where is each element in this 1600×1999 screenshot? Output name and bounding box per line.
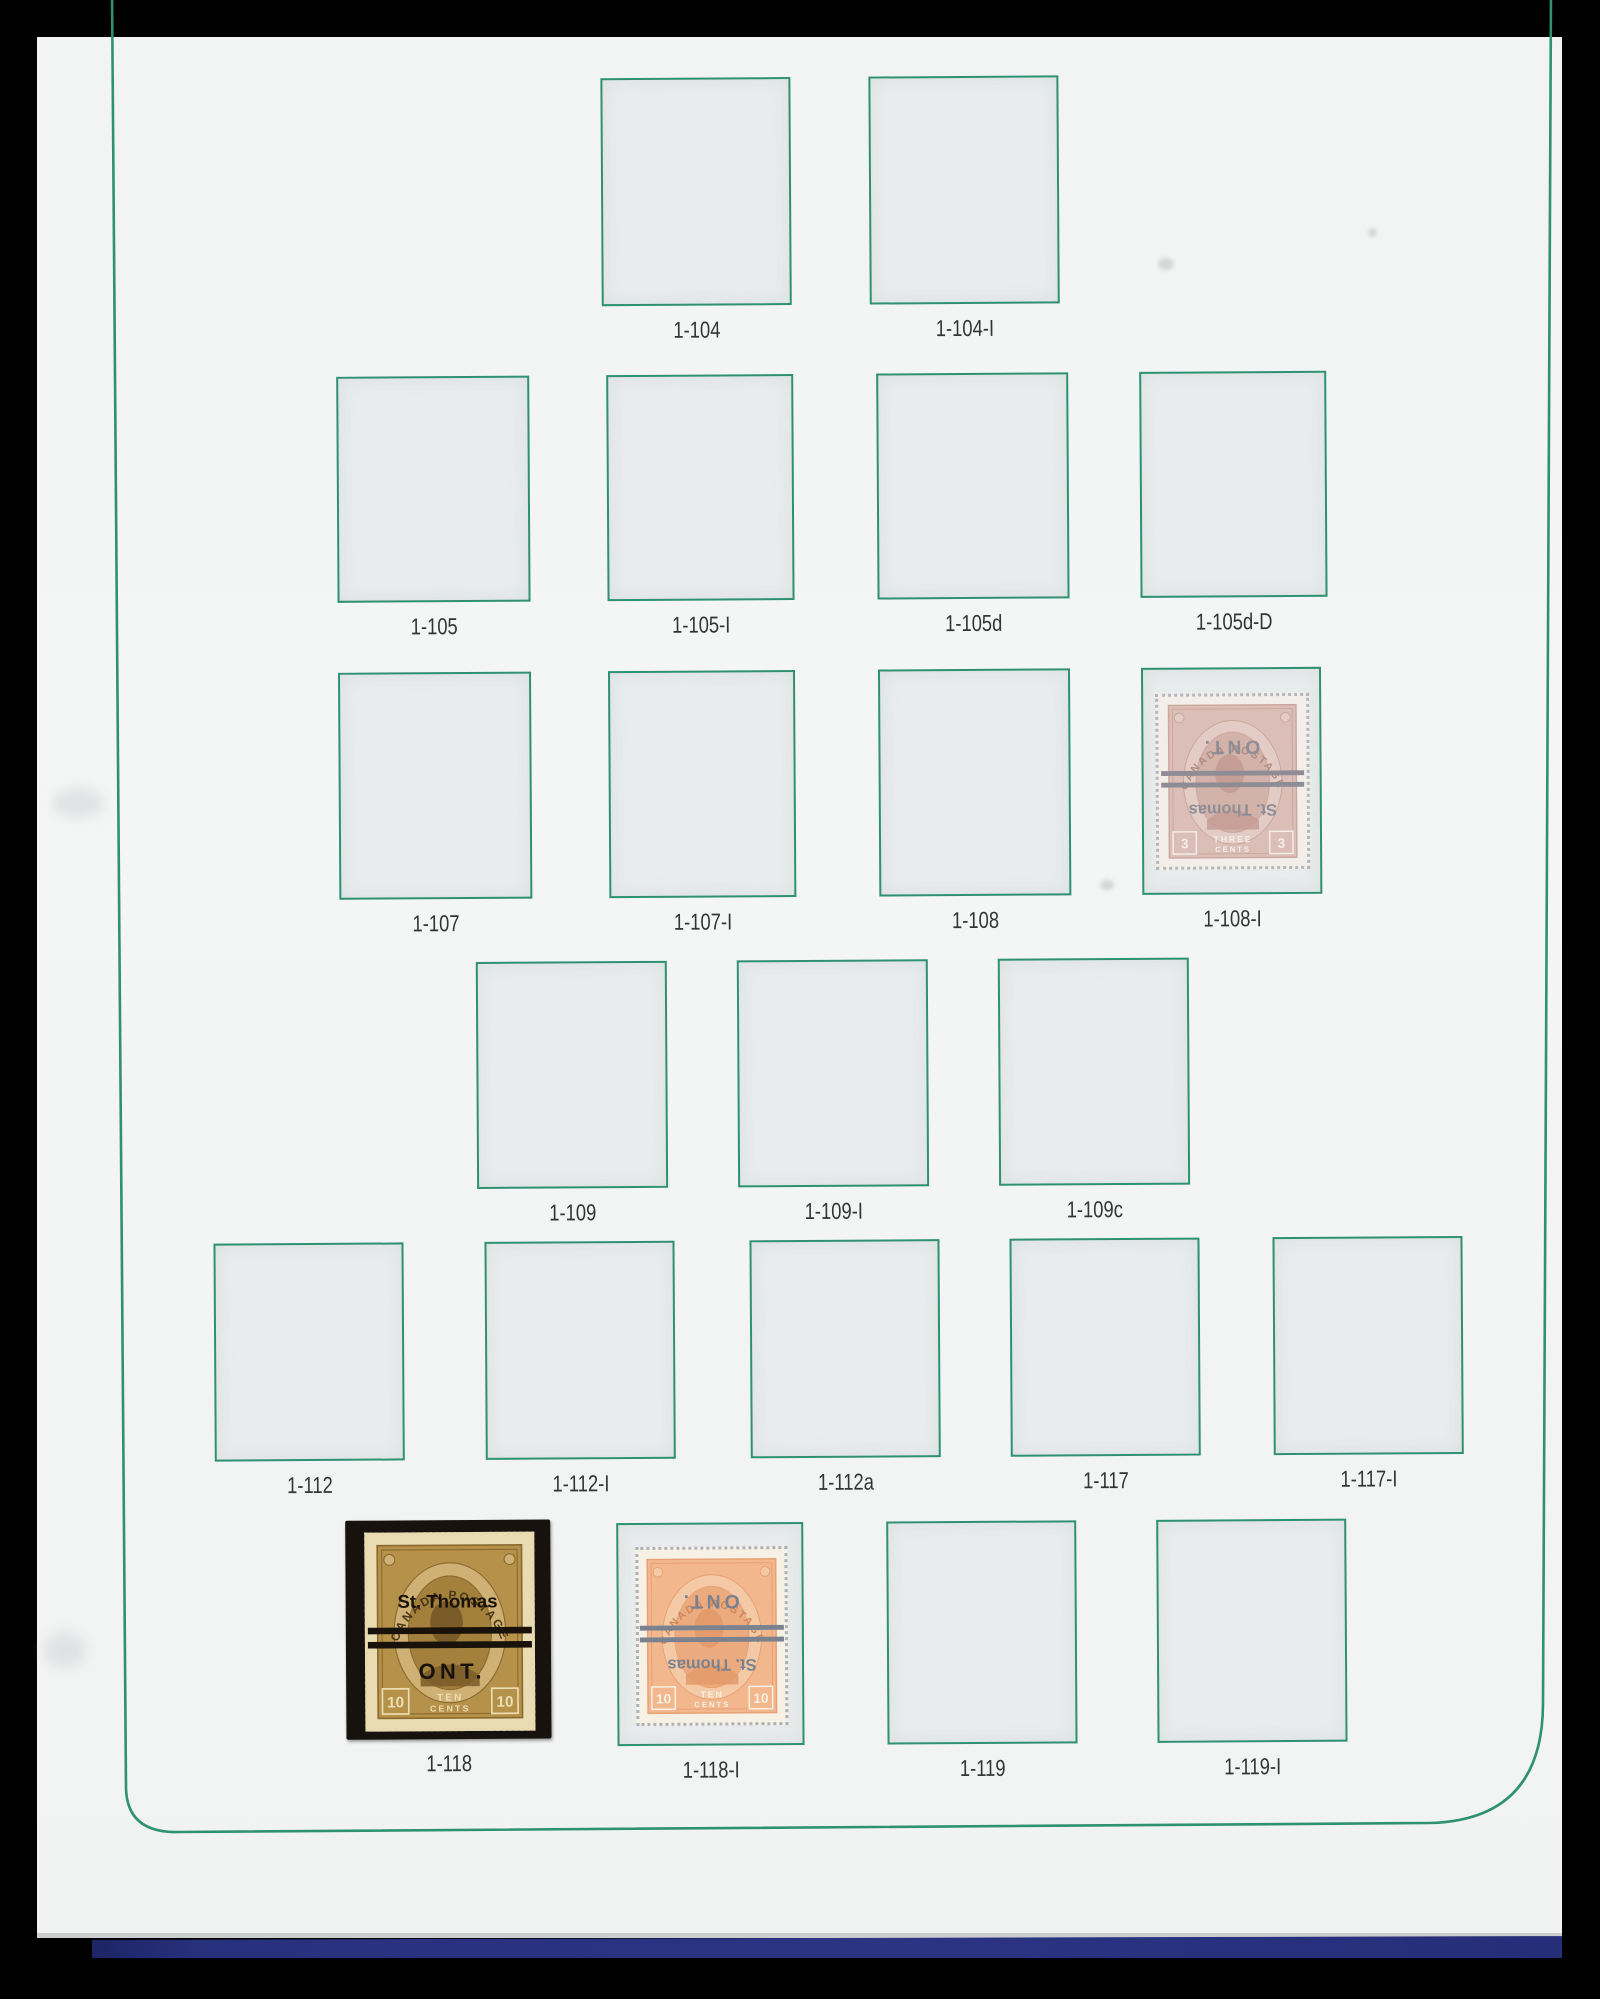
stamp-box-label: 1-109c xyxy=(994,1196,1195,1224)
svg-text:CENTS: CENTS xyxy=(430,1703,471,1713)
stamp-box-label: 1-105 xyxy=(333,613,536,641)
svg-text:10: 10 xyxy=(753,1691,769,1706)
stamp-box-label: 1-104-I xyxy=(865,314,1065,342)
stamp-box-label: 1-112 xyxy=(210,1471,410,1499)
stamp-slot-1-108-I: CANADA POSTAGE 3 3 THREE CENTS St. Thoma… xyxy=(1141,667,1322,895)
stamp-design: CANADA POSTAGE 3 3 THREE CENTS St. Thoma… xyxy=(1158,696,1307,867)
stamp-box xyxy=(886,1520,1077,1744)
svg-text:ONT.: ONT. xyxy=(419,1658,486,1683)
stamp-box-label: 1-107 xyxy=(335,910,538,938)
stamp-box-label: 1-109-I xyxy=(733,1197,934,1225)
stamp-box-label: 1-108-I xyxy=(1136,905,1328,933)
stamp-box-label: 1-112-I xyxy=(481,1470,681,1498)
stamp-box xyxy=(476,961,668,1189)
stamp-box xyxy=(484,1241,675,1460)
stamp-box xyxy=(998,958,1190,1186)
svg-text:TEN: TEN xyxy=(437,1692,463,1703)
binder-shadow xyxy=(0,1958,1600,1999)
stamp-slot-1-105d-D: 1-105d-D xyxy=(1139,371,1327,598)
svg-text:St. Thomas: St. Thomas xyxy=(397,1590,497,1612)
stamp-slot-1-107: 1-107 xyxy=(338,672,532,900)
stamp-slot-1-104: 1-104 xyxy=(600,77,791,306)
svg-text:St. Thomas: St. Thomas xyxy=(1189,800,1278,819)
stamp-slot-1-109-I: 1-109-I xyxy=(737,959,929,1187)
stamp-slot-1-117: 1-117 xyxy=(1009,1238,1200,1457)
stamp-box xyxy=(878,668,1071,896)
stamp-slot-1-105-I: 1-105-I xyxy=(606,374,794,601)
stamp-slot-1-117-I: 1-117-I xyxy=(1272,1236,1463,1455)
stamp-box-label: 1-119-I xyxy=(1153,1753,1353,1781)
stamp-box-label: 1-105d-D xyxy=(1135,608,1333,636)
stamp-box xyxy=(338,672,532,900)
stamp-box xyxy=(336,376,530,603)
stamp-design: CANADA POSTAGE 10 10 TEN CENTS St. Thoma… xyxy=(367,1535,532,1729)
stamp-box xyxy=(213,1242,404,1461)
stamp-box xyxy=(608,670,796,898)
stamp-slot-1-107-I: 1-107-I xyxy=(608,670,796,898)
stamp-slot-1-118-I: CANADA POSTAGE 10 10 TEN CENTS St. Thoma… xyxy=(616,1522,804,1746)
stamp-slot-1-105d: 1-105d xyxy=(876,372,1069,599)
svg-text:ONT.: ONT. xyxy=(680,1590,740,1612)
stamp-slot-1-118: CANADA POSTAGE 10 10 TEN CENTS St. Thoma… xyxy=(345,1520,551,1740)
stamp-box-label: 1-117-I xyxy=(1269,1465,1469,1493)
stamp-box xyxy=(876,372,1069,599)
svg-text:ONT.: ONT. xyxy=(1201,736,1261,757)
stamp-slot-1-104-I: 1-104-I xyxy=(868,75,1059,304)
svg-text:CENTS: CENTS xyxy=(1215,845,1251,854)
stamp-box-label: 1-108 xyxy=(875,906,1077,934)
stamp-box xyxy=(749,1239,940,1458)
svg-text:TEN: TEN xyxy=(701,1689,724,1699)
stamp-box xyxy=(1156,1519,1347,1743)
stamp-box xyxy=(737,959,929,1187)
stamp-slot-1-112-I: 1-112-I xyxy=(484,1241,675,1460)
stamp-box-label: 1-105-I xyxy=(602,611,800,639)
stamp-box-label: 1-109 xyxy=(472,1199,673,1227)
stamp-box xyxy=(1009,1238,1200,1457)
stamp-slot-1-109: 1-109 xyxy=(476,961,668,1189)
stamp-box-label: 1-104 xyxy=(597,316,797,344)
svg-text:3: 3 xyxy=(1181,836,1189,851)
stamp-box-label: 1-105d xyxy=(873,609,1075,637)
stamp-box-label: 1-112a xyxy=(746,1468,946,1496)
stamp-slot-1-109c: 1-109c xyxy=(998,958,1190,1186)
stamp-box xyxy=(1139,371,1327,598)
stamp-box-label: 1-119 xyxy=(883,1754,1083,1782)
stamp-box-label: 1-117 xyxy=(1006,1467,1206,1495)
svg-text:3: 3 xyxy=(1278,836,1286,851)
stamp-design: CANADA POSTAGE 10 10 TEN CENTS St. Thoma… xyxy=(638,1549,785,1723)
stamp-box-label: 1-107-I xyxy=(604,908,802,936)
svg-text:10: 10 xyxy=(496,1694,513,1711)
stamp-box-label: 1-118 xyxy=(343,1750,555,1778)
ghost-stamp-1-108-I: CANADA POSTAGE 3 3 THREE CENTS St. Thoma… xyxy=(1155,693,1310,870)
stamp-slot-1-119: 1-119 xyxy=(886,1520,1077,1744)
stamp-slot-1-105: 1-105 xyxy=(336,376,530,603)
stamp-box-label: 1-118-I xyxy=(612,1756,810,1784)
ghost-stamp-1-118-I: CANADA POSTAGE 10 10 TEN CENTS St. Thoma… xyxy=(635,1546,788,1726)
scanned-album-photo: 1-104 1-104-I 1-105 1-105-I 1-105d 1-105… xyxy=(0,0,1600,1999)
precancel-stamp-1-118: CANADA POSTAGE 10 10 TEN CENTS St. Thoma… xyxy=(364,1532,535,1732)
stamp-slot-1-112: 1-112 xyxy=(213,1242,404,1461)
stamp-box xyxy=(600,77,791,306)
svg-text:THREE: THREE xyxy=(1213,834,1252,844)
stamp-slot-1-119-I: 1-119-I xyxy=(1156,1519,1347,1743)
stamp-box xyxy=(1272,1236,1463,1455)
svg-text:10: 10 xyxy=(387,1694,404,1711)
svg-text:St. Thomas: St. Thomas xyxy=(667,1655,756,1675)
stamp-box xyxy=(868,75,1059,304)
stamp-slot-1-108: 1-108 xyxy=(878,668,1071,896)
svg-text:10: 10 xyxy=(656,1691,672,1706)
stamp-box xyxy=(606,374,794,601)
stamp-slot-1-112a: 1-112a xyxy=(749,1239,940,1458)
svg-text:CENTS: CENTS xyxy=(694,1700,730,1709)
stamp-grid: 1-104 1-104-I 1-105 1-105-I 1-105d 1-105… xyxy=(0,0,1600,1999)
